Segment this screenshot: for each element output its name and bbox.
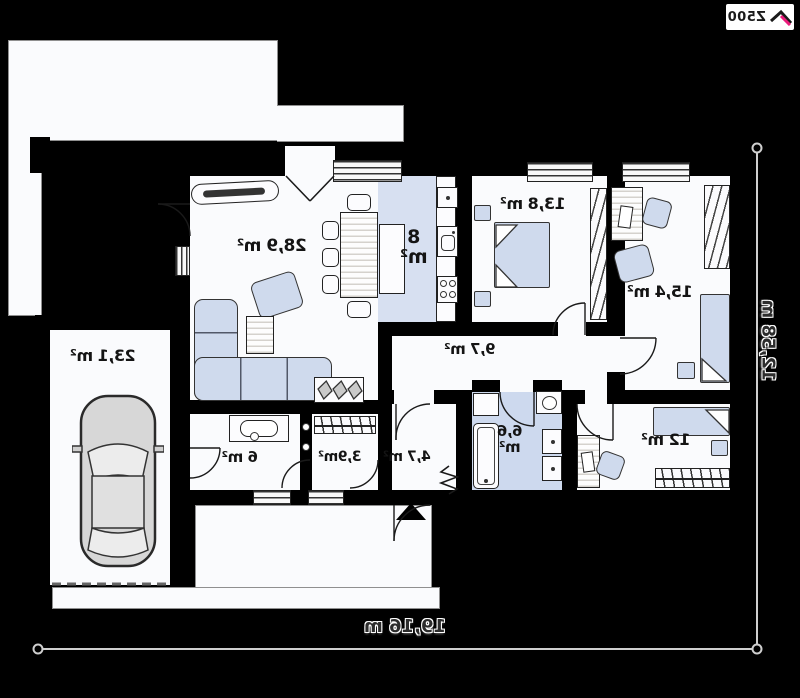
dimension-width-label: 19,16 m bbox=[335, 616, 475, 637]
room-label-bedroom-bottom: 12 m² bbox=[631, 432, 701, 449]
roof-icon bbox=[769, 8, 793, 26]
room-label-entry-hall: 6 m² bbox=[210, 450, 270, 466]
room-label-bedroom-top: 13,8 m² bbox=[493, 196, 573, 213]
room-label-garage: 23,1 m² bbox=[57, 348, 149, 365]
room-label-hallway: 9,7 m² bbox=[435, 342, 505, 358]
fireplace-flames-icon bbox=[317, 380, 363, 400]
floor-plan-canvas: 28,9 m² 8 m² 13,8 m² 15,4 m² 12 m² 9,7 m… bbox=[0, 0, 800, 698]
dimension-lines bbox=[34, 144, 762, 654]
room-label-bedroom-right: 15,4 m² bbox=[620, 284, 700, 301]
room-label-living: 28,9 m² bbox=[212, 238, 332, 256]
bathroom-area-unit: m² bbox=[487, 440, 533, 456]
room-label-vestibule: 4,7 m² bbox=[380, 450, 434, 465]
room-label-kitchen: 8 m² bbox=[393, 228, 435, 268]
radiator-icon bbox=[441, 466, 457, 494]
dimension-height-label: 12,58 m bbox=[758, 276, 779, 406]
double-door bbox=[286, 176, 334, 201]
kitchen-area-value: 8 bbox=[393, 228, 435, 248]
pillows bbox=[496, 225, 729, 433]
brand-text: Z500 bbox=[727, 10, 766, 25]
room-label-bathroom: 6,6 m² bbox=[487, 424, 533, 456]
kitchen-area-unit: m² bbox=[393, 248, 435, 268]
brand-logo: Z500 bbox=[726, 4, 794, 30]
room-label-wardrobe: 3,9m² bbox=[309, 450, 371, 465]
